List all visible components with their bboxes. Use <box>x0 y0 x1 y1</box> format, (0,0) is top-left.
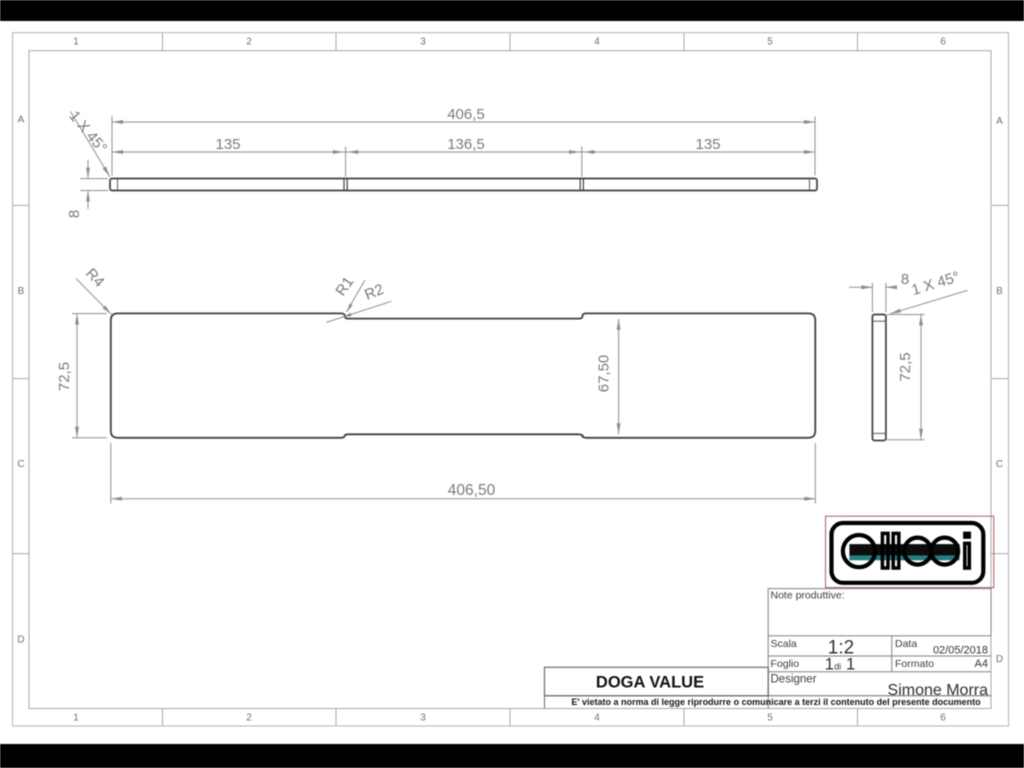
svg-text:02/05/2018: 02/05/2018 <box>933 645 988 657</box>
svg-text:136,5: 136,5 <box>447 136 485 153</box>
svg-text:2: 2 <box>246 713 252 724</box>
svg-text:Note produttive:: Note produttive: <box>771 590 845 602</box>
svg-text:67,50: 67,50 <box>596 355 613 393</box>
svg-text:1: 1 <box>73 713 79 724</box>
svg-text:72,5: 72,5 <box>897 352 914 381</box>
svg-text:5: 5 <box>767 713 773 724</box>
svg-text:B: B <box>996 286 1003 297</box>
svg-text:6: 6 <box>940 713 946 724</box>
svg-text:D: D <box>17 634 24 645</box>
svg-text:1: 1 <box>73 37 79 48</box>
svg-text:B: B <box>18 286 25 297</box>
svg-text:Formato: Formato <box>895 658 934 670</box>
svg-text:3: 3 <box>420 713 426 724</box>
svg-text:Scala: Scala <box>771 638 797 650</box>
svg-text:C: C <box>996 459 1003 470</box>
svg-text:1 X 45°: 1 X 45° <box>66 108 111 157</box>
svg-text:6: 6 <box>940 37 946 48</box>
svg-text:406,50: 406,50 <box>448 482 496 499</box>
svg-text:R2: R2 <box>362 281 386 304</box>
svg-text:Foglio: Foglio <box>771 658 800 670</box>
svg-text:D: D <box>996 654 1003 665</box>
svg-text:R1: R1 <box>332 274 357 299</box>
svg-text:A: A <box>18 115 25 126</box>
svg-text:135: 135 <box>215 136 240 153</box>
svg-text:2: 2 <box>246 37 252 48</box>
svg-text:406,5: 406,5 <box>447 106 485 123</box>
svg-text:8: 8 <box>901 271 909 288</box>
svg-text:135: 135 <box>695 136 720 153</box>
svg-text:3: 3 <box>420 37 426 48</box>
svg-text:5: 5 <box>767 37 773 48</box>
svg-text:8: 8 <box>66 210 83 218</box>
svg-text:Designer: Designer <box>771 674 817 686</box>
svg-text:C: C <box>17 459 24 470</box>
svg-text:A: A <box>996 116 1003 127</box>
svg-text:R4: R4 <box>82 265 108 291</box>
svg-text:4: 4 <box>594 37 600 48</box>
svg-text:72,5: 72,5 <box>56 362 73 391</box>
svg-text:E' vietato a norma di legge ri: E' vietato a norma di legge riprodurre o… <box>571 697 981 707</box>
svg-text:A4: A4 <box>975 658 988 670</box>
svg-text:Data: Data <box>895 638 917 650</box>
svg-text:4: 4 <box>594 713 600 724</box>
svg-text:DOGA VALUE: DOGA VALUE <box>596 674 704 692</box>
